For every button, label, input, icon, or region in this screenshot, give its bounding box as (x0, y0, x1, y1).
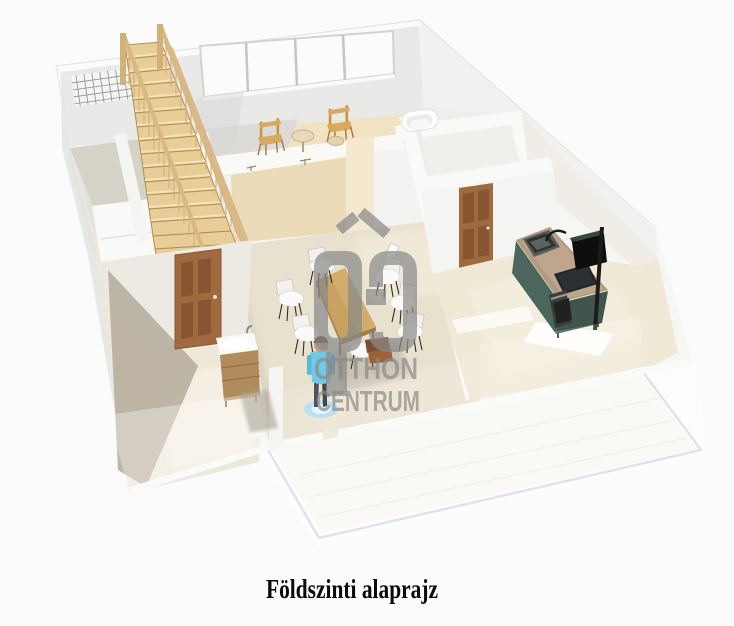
svg-text:CENTRUM: CENTRUM (316, 386, 420, 418)
svg-text:Földszinti alaprajz: Földszinti alaprajz (266, 574, 438, 604)
svg-text:OTTHON: OTTHON (314, 351, 418, 386)
